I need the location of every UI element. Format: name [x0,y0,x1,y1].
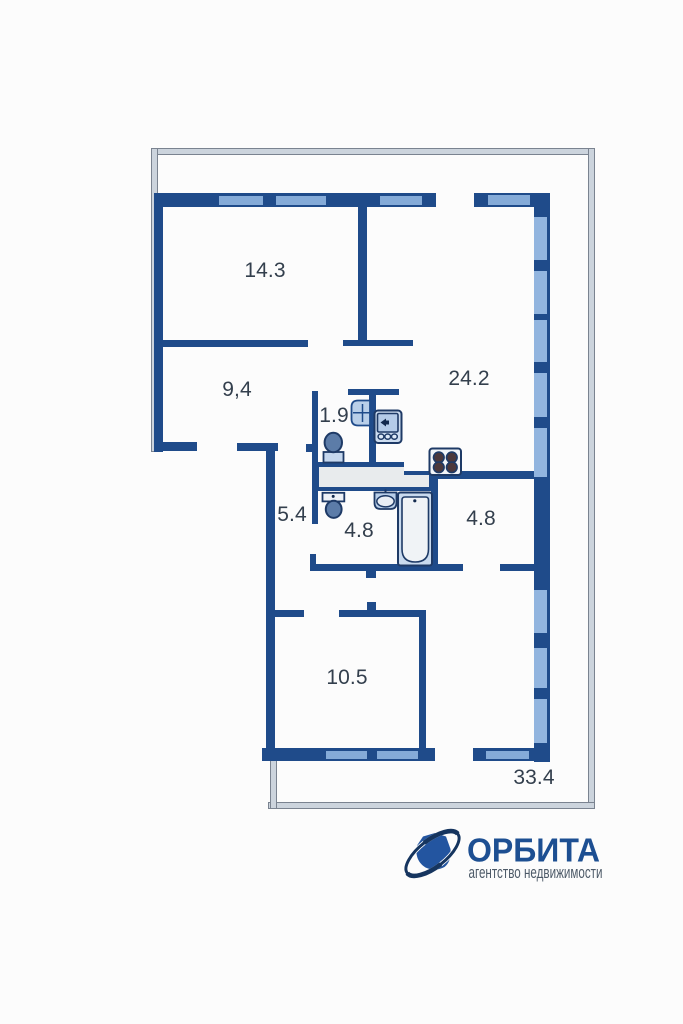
svg-text:агентство недвижимости: агентство недвижимости [469,864,603,882]
